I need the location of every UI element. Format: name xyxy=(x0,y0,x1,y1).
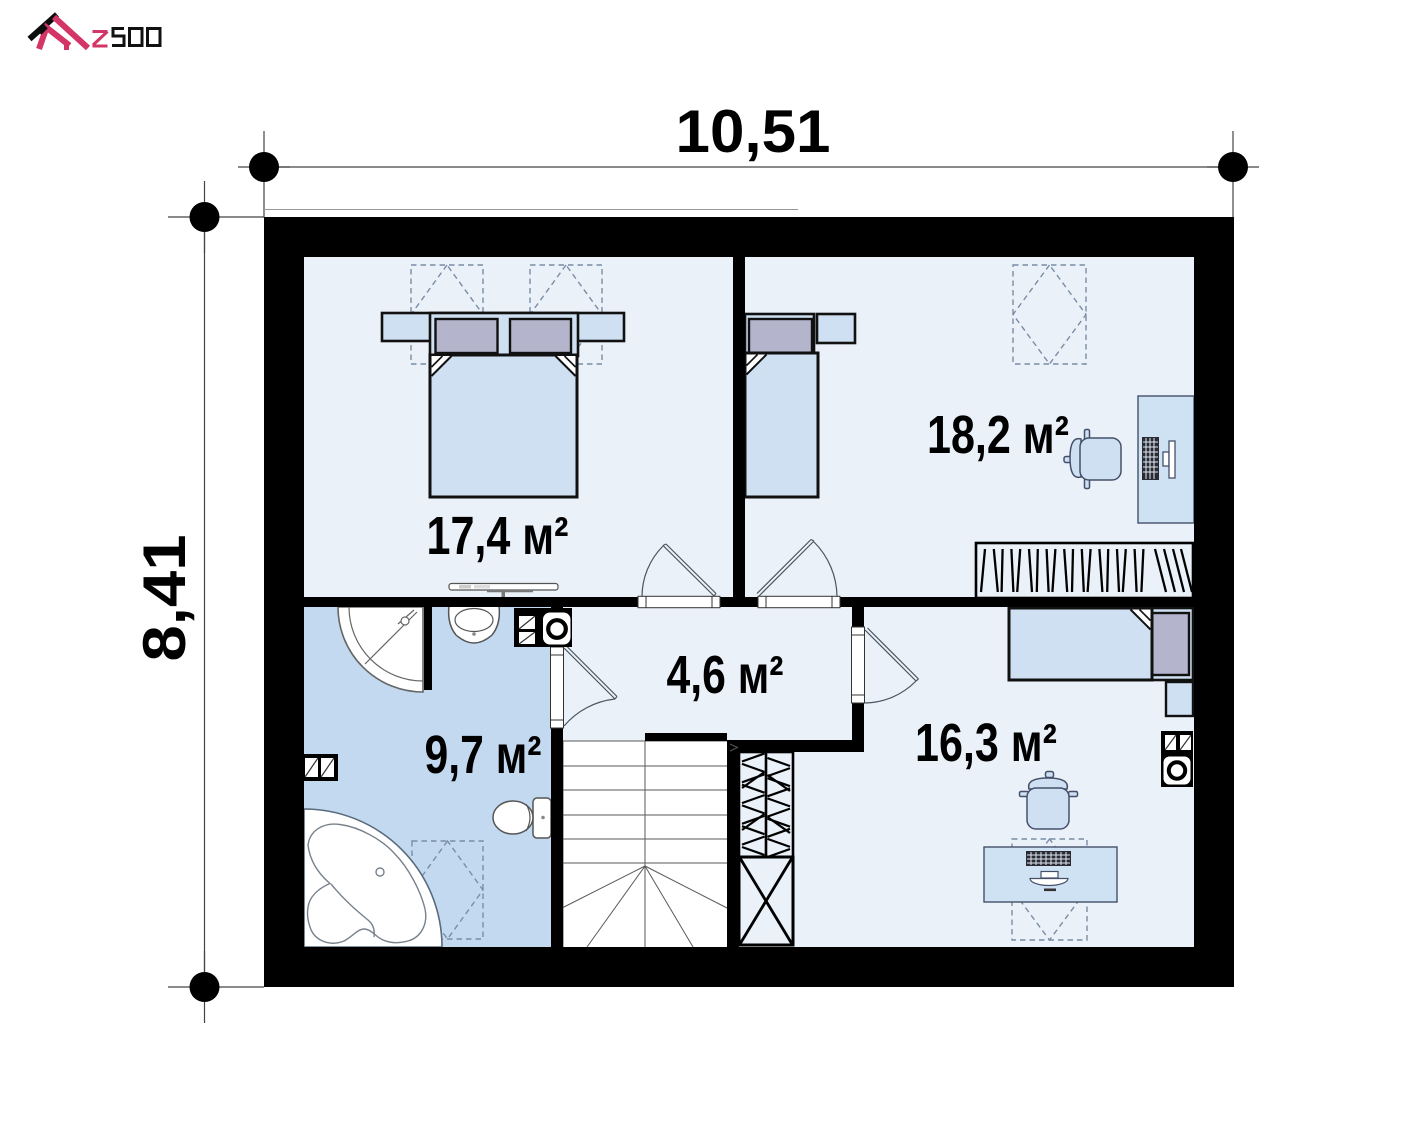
svg-text:18,2 м²: 18,2 м² xyxy=(927,406,1069,465)
svg-text:10,51: 10,51 xyxy=(676,97,831,165)
svg-text:4,6 м²: 4,6 м² xyxy=(667,646,784,705)
svg-text:9,7 м²: 9,7 м² xyxy=(425,726,542,785)
svg-text:17,4 м²: 17,4 м² xyxy=(427,507,569,566)
svg-text:16,3 м²: 16,3 м² xyxy=(915,714,1057,773)
svg-text:8,41: 8,41 xyxy=(130,535,198,662)
